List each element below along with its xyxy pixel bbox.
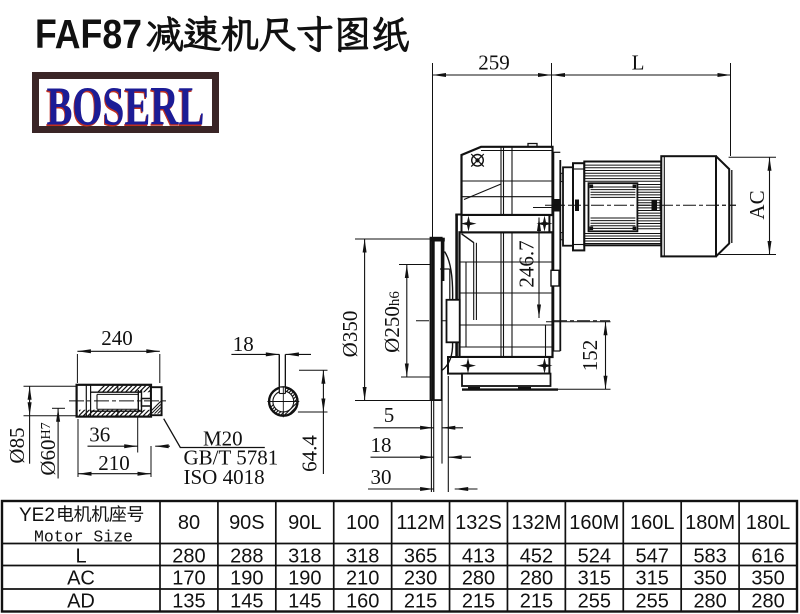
svg-text:112M: 112M <box>396 512 445 534</box>
svg-text:315: 315 <box>578 568 611 590</box>
svg-text:318: 318 <box>346 546 379 568</box>
svg-text:18: 18 <box>371 433 392 457</box>
svg-text:240: 240 <box>101 326 133 350</box>
svg-text:180M: 180M <box>685 512 735 534</box>
svg-text:152: 152 <box>578 340 602 372</box>
svg-text:190: 190 <box>230 568 263 590</box>
svg-text:AD: AD <box>67 591 95 613</box>
svg-text:255: 255 <box>578 591 611 613</box>
svg-text:255: 255 <box>636 591 669 613</box>
svg-text:280: 280 <box>520 568 553 590</box>
svg-text:FAF87: FAF87 <box>35 11 142 57</box>
svg-text:246.7: 246.7 <box>515 240 539 287</box>
svg-text:80: 80 <box>178 512 200 534</box>
svg-text:30: 30 <box>371 465 392 489</box>
svg-text:90S: 90S <box>229 512 265 534</box>
svg-text:145: 145 <box>288 591 321 613</box>
svg-text:145: 145 <box>230 591 263 613</box>
svg-text:288: 288 <box>230 546 263 568</box>
svg-text:L: L <box>632 51 645 75</box>
svg-text:100: 100 <box>346 512 379 534</box>
svg-text:5: 5 <box>384 403 395 427</box>
svg-text:Ø85: Ø85 <box>5 427 29 463</box>
svg-text:215: 215 <box>404 591 437 613</box>
svg-text:BOSERL: BOSERL <box>47 76 205 137</box>
svg-text:190: 190 <box>288 568 321 590</box>
svg-text:160L: 160L <box>630 512 675 534</box>
svg-text:350: 350 <box>751 568 784 590</box>
svg-text:135: 135 <box>172 591 205 613</box>
svg-text:210: 210 <box>346 568 379 590</box>
svg-text:280: 280 <box>751 591 784 613</box>
svg-text:259: 259 <box>478 51 510 75</box>
svg-text:616: 616 <box>751 546 784 568</box>
svg-text:215: 215 <box>520 591 553 613</box>
svg-text:L: L <box>75 546 86 568</box>
svg-text:90L: 90L <box>288 512 321 534</box>
svg-text:YE2: YE2 <box>19 505 55 526</box>
svg-text:36: 36 <box>89 423 110 447</box>
svg-text:160M: 160M <box>569 512 619 534</box>
svg-text:350: 350 <box>693 568 726 590</box>
svg-text:413: 413 <box>462 546 495 568</box>
svg-text:180L: 180L <box>746 512 791 534</box>
svg-text:Motor Size: Motor Size <box>34 528 133 547</box>
svg-text:132M: 132M <box>511 512 561 534</box>
svg-text:Ø350: Ø350 <box>338 311 362 358</box>
svg-text:170: 170 <box>172 568 205 590</box>
svg-text:64.4: 64.4 <box>298 435 322 472</box>
svg-text:215: 215 <box>462 591 495 613</box>
svg-text:524: 524 <box>578 546 611 568</box>
svg-text:318: 318 <box>288 546 321 568</box>
svg-text:280: 280 <box>462 568 495 590</box>
svg-text:280: 280 <box>172 546 205 568</box>
svg-text:365: 365 <box>404 546 437 568</box>
svg-text:ISO 4018: ISO 4018 <box>184 465 265 489</box>
svg-text:AC: AC <box>745 190 769 219</box>
svg-text:315: 315 <box>636 568 669 590</box>
svg-text:18: 18 <box>233 332 254 356</box>
svg-text:230: 230 <box>404 568 437 590</box>
svg-text:280: 280 <box>693 591 726 613</box>
svg-text:452: 452 <box>520 546 553 568</box>
svg-text:547: 547 <box>636 546 669 568</box>
svg-text:583: 583 <box>693 546 726 568</box>
svg-text:132S: 132S <box>455 512 502 534</box>
svg-text:AC: AC <box>67 568 95 590</box>
svg-text:160: 160 <box>346 591 379 613</box>
svg-text:210: 210 <box>98 451 130 475</box>
